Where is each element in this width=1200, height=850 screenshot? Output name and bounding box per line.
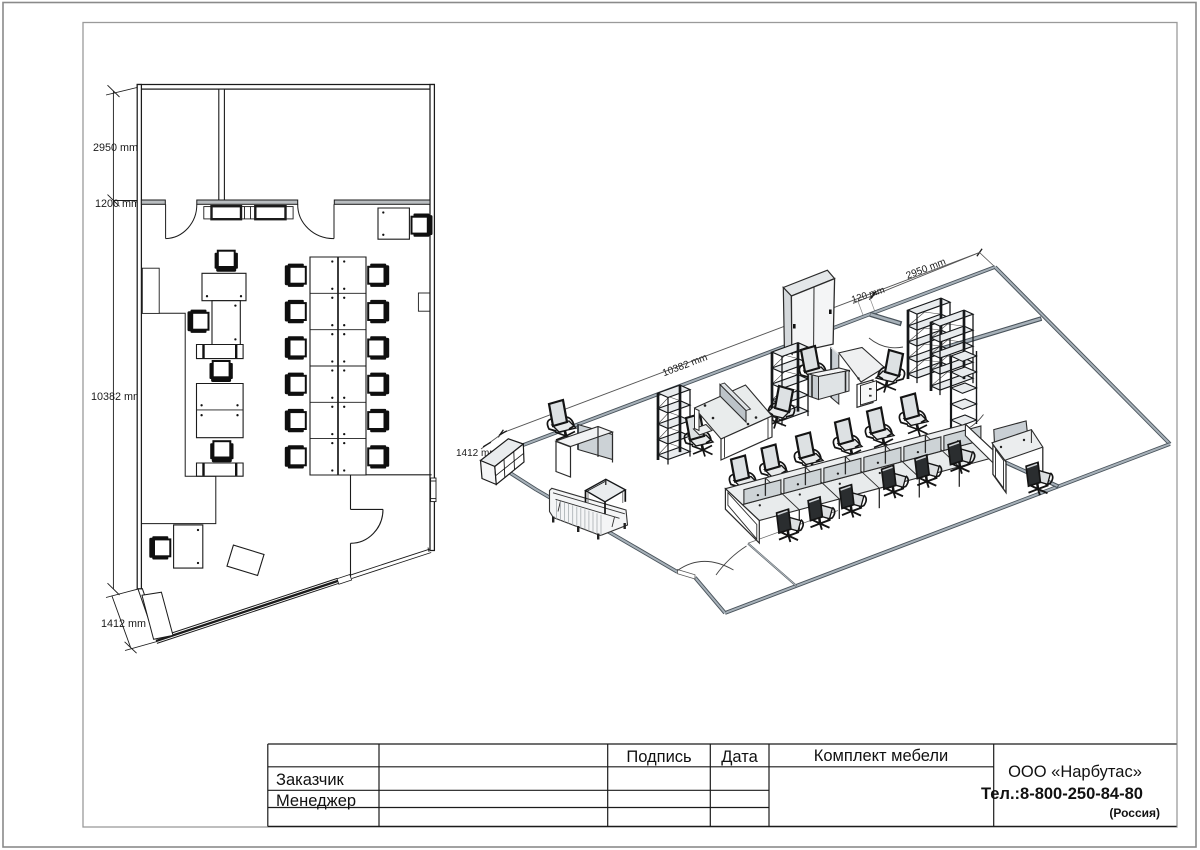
- svg-text:10382 mm: 10382 mm: [661, 352, 709, 379]
- svg-text:10382 mm: 10382 mm: [91, 391, 142, 403]
- svg-text:Заказчик: Заказчик: [276, 771, 345, 789]
- svg-text:Менеджер: Менеджер: [276, 792, 356, 810]
- svg-text:120 mm: 120 mm: [850, 285, 886, 306]
- svg-text:1200 mm: 1200 mm: [95, 198, 140, 210]
- svg-text:Тел.:8-800-250-84-80: Тел.:8-800-250-84-80: [981, 785, 1143, 803]
- svg-text:Подпись: Подпись: [626, 748, 691, 766]
- svg-text:Дата: Дата: [721, 748, 758, 766]
- svg-text:2950 mm: 2950 mm: [93, 142, 138, 154]
- svg-text:ООО «Нарбутас»: ООО «Нарбутас»: [1008, 763, 1142, 781]
- svg-text:Комплект мебели: Комплект мебели: [814, 747, 949, 765]
- svg-text:2950 mm: 2950 mm: [905, 257, 948, 282]
- svg-text:(Россия): (Россия): [1109, 806, 1160, 820]
